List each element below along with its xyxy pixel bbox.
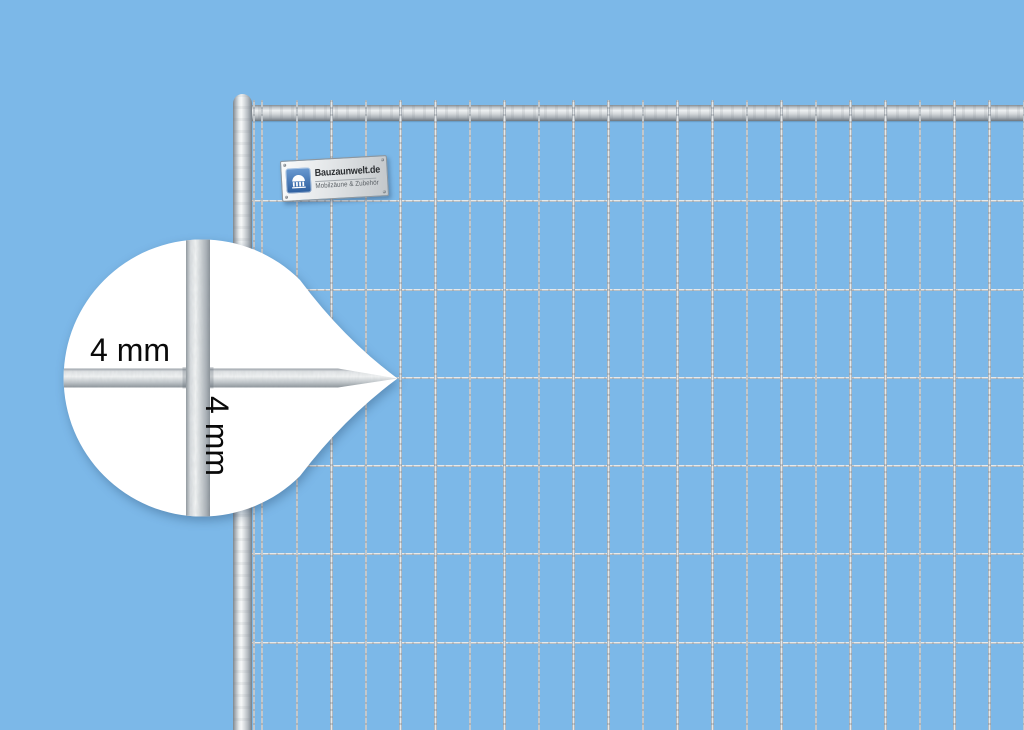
wire-thickness-label-vertical: 4 mm bbox=[201, 396, 233, 476]
product-image-canvas: Bauzaunwelt.de Mobilzäune & Zubehör bbox=[0, 0, 1024, 730]
wire-thickness-label-horizontal: 4 mm bbox=[90, 334, 170, 366]
